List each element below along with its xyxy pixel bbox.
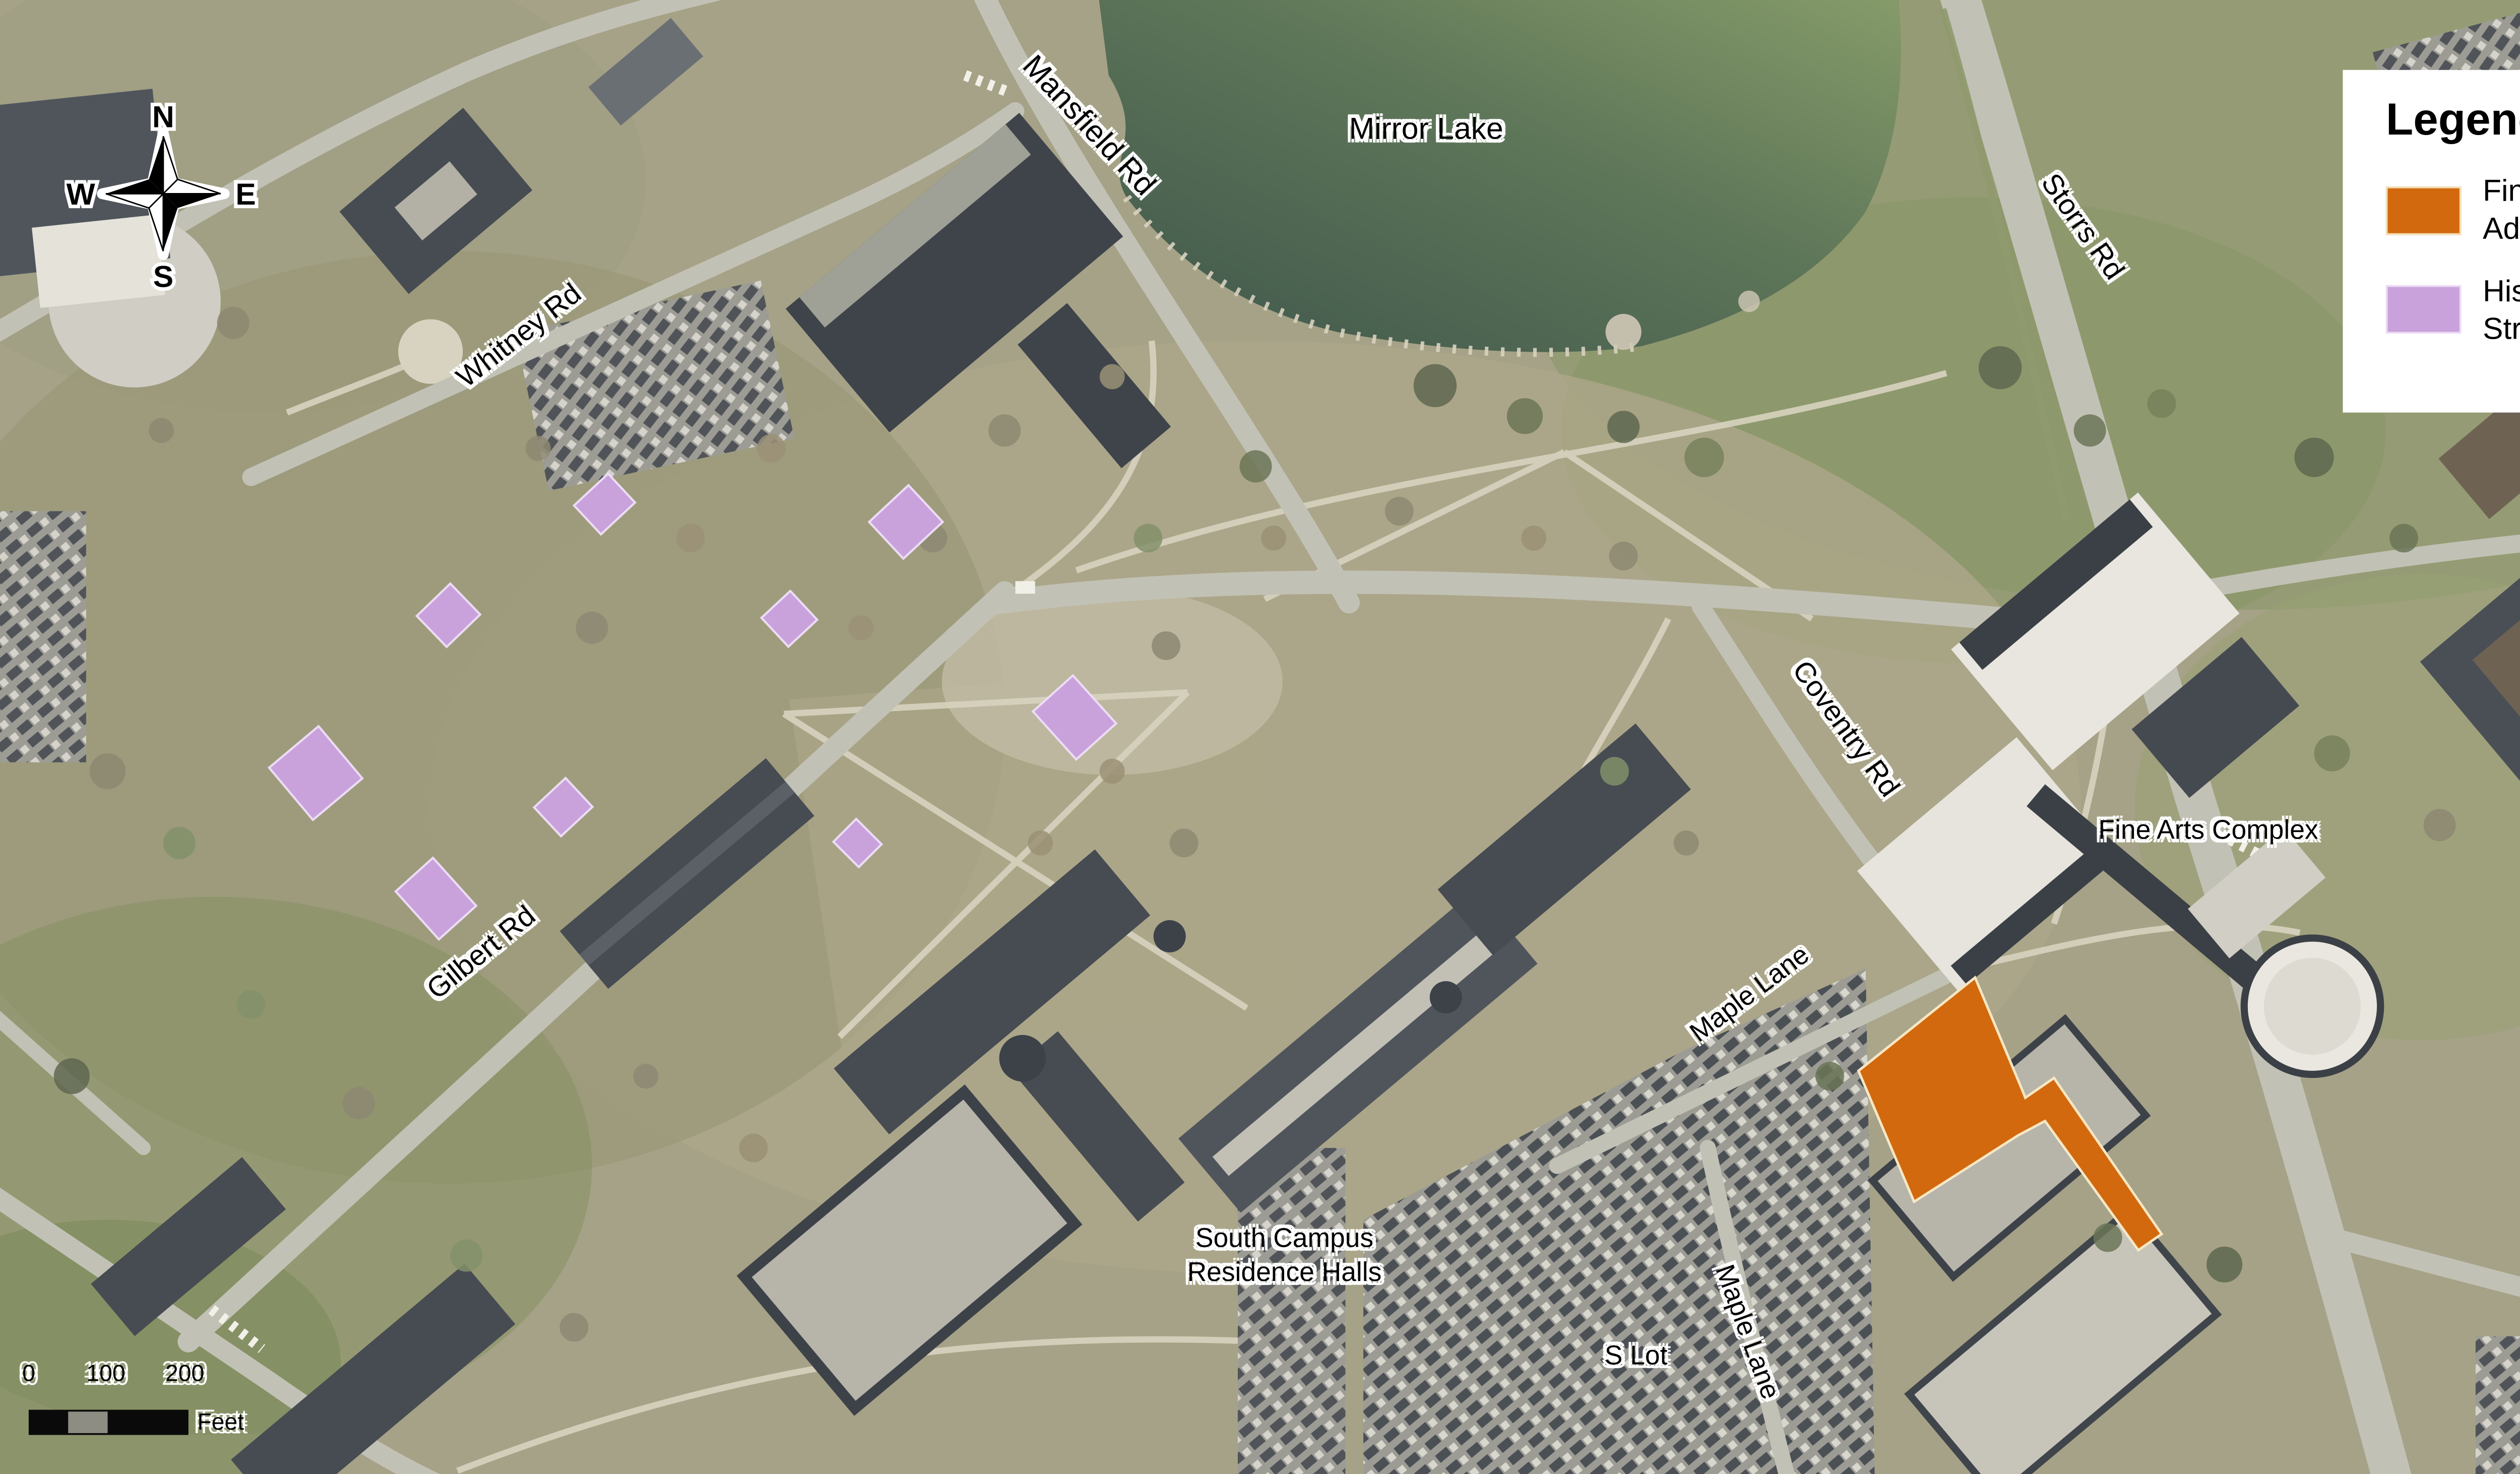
scale-bar-bar — [29, 1410, 188, 1435]
scale-bar-unit: Feet — [198, 1408, 244, 1435]
compass-w-label: W — [67, 177, 96, 211]
label-south-campus-line2: Residence Halls — [1187, 1257, 1382, 1291]
legend-title: Legend — [2386, 95, 2520, 147]
scale-tick-100: 100 — [86, 1360, 125, 1386]
scale-tick-0: 0 — [22, 1360, 35, 1386]
legend-item-fine-arts-addition: Fine Arts Addition — [2386, 172, 2520, 248]
legend-item-historic-structures: Historic Structures — [2386, 272, 2520, 348]
label-south-campus-line1: South Campus — [1187, 1224, 1382, 1257]
legend-label-fine-arts-addition: Fine Arts Addition — [2483, 172, 2520, 248]
compass-s-label: S — [153, 259, 173, 292]
label-south-campus-residence-halls: South Campus Residence Halls — [1187, 1224, 1382, 1291]
fine-arts-addition-swatch — [2386, 186, 2461, 234]
compass-e-label: E — [235, 177, 256, 211]
plaza-circle — [398, 319, 463, 384]
compass-n-label: N — [152, 100, 174, 134]
compass-rose: N E S W — [65, 95, 262, 293]
historic-structures-swatch — [2386, 286, 2461, 334]
campus-map: N E S W Mirror Lake Mansfield Rd Whitney… — [0, 0, 2520, 1474]
legend-label-historic-structures: Historic Structures — [2483, 272, 2520, 348]
scale-bar-segment — [68, 1412, 107, 1433]
label-fine-arts-complex: Fine Arts Complex — [2098, 815, 2318, 849]
legend: Legend Fine Arts Addition Historic Struc… — [2343, 70, 2520, 413]
label-s-lot: S Lot — [1605, 1341, 1668, 1375]
label-mirror-lake: Mirror Lake — [1349, 110, 1503, 148]
scale-tick-200: 200 — [165, 1360, 204, 1386]
